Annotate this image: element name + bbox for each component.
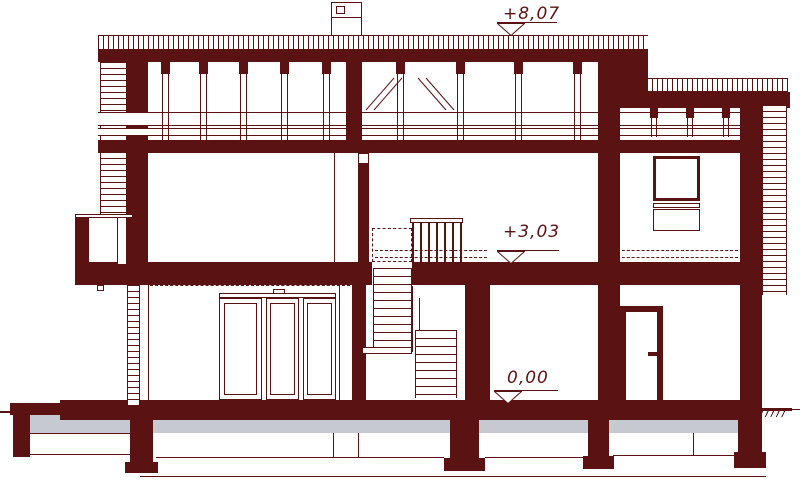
footing-base: [444, 458, 485, 471]
stair-hidden-outline: [372, 228, 412, 262]
chimney-flue: [346, 62, 362, 140]
foundation-bottom-line: [140, 476, 766, 477]
ground-fill-right: [609, 420, 738, 433]
wing-window: [653, 156, 700, 201]
wing-roof-hatch: [647, 78, 788, 92]
wing-radiator: [653, 209, 700, 231]
attic-post: [162, 72, 169, 140]
section-drawing-canvas: +8,07 +3,03 0,00: [0, 0, 800, 489]
balcony-door-frame: [117, 217, 127, 265]
chimney-cap-line: [332, 17, 361, 18]
balcony-slab-drip: [97, 285, 104, 291]
foundation-footing: [588, 400, 609, 460]
foundation-line: [613, 455, 734, 456]
attic-post: [281, 72, 288, 140]
hidden-edge-line: [612, 250, 738, 251]
wing-window-sill: [653, 203, 700, 208]
stair-flight-upper: [373, 268, 412, 348]
attic-post: [240, 72, 247, 140]
wing-collar-beam-lower: [620, 128, 740, 136]
main-roof-hatch: [98, 35, 648, 50]
attic-post: [200, 72, 207, 140]
interior-partition-wall-ground: [352, 285, 366, 400]
grade-hatch-right: [762, 411, 786, 417]
level-marker-roof-triangle: [497, 23, 525, 36]
level-marker-first-floor-triangle: [497, 251, 525, 264]
wing-attic-post: [687, 116, 693, 137]
foundation-footing: [13, 403, 30, 457]
balcony-parapet: [75, 218, 89, 285]
foundation-footing: [130, 400, 153, 470]
foundation-line: [358, 433, 359, 457]
wind-braces: [320, 70, 480, 118]
left-exterior-wall: [127, 62, 148, 285]
grade-line-right-ext: [792, 409, 800, 410]
patio-door-vent: [273, 289, 285, 294]
attic-post: [515, 72, 522, 140]
hidden-edge-line: [612, 257, 738, 258]
patio-door-glass: [270, 303, 295, 395]
level-marker-first-floor-label: +3,03: [503, 222, 560, 242]
level-marker-roof-label: +8,07: [503, 4, 560, 24]
main-roof-slab: [98, 50, 648, 62]
stair-landing: [362, 347, 412, 354]
foundation-footing: [450, 400, 479, 462]
stair-landing-support: [362, 354, 363, 400]
foundation-line: [333, 433, 334, 457]
ground-floor-slab: [60, 400, 762, 420]
wing-attic-post: [651, 116, 657, 137]
wall-face-line: [148, 285, 149, 400]
stair-newel-line: [411, 286, 413, 352]
ground-fill-mid: [479, 420, 588, 433]
level-marker-ground-label: 0,00: [507, 368, 549, 388]
terrace-foundation-outline: [28, 433, 140, 455]
footing-base: [734, 452, 766, 468]
first-floor-slab-left: [75, 262, 372, 285]
wall-reveal-line: [334, 153, 335, 262]
wall-face-line: [339, 285, 340, 400]
patio-door-glass: [224, 303, 257, 395]
ground-fill-left: [153, 420, 450, 433]
terrace-post: [127, 285, 140, 405]
grade-line-left: [0, 411, 13, 413]
interior-partition-wall-first-floor: [358, 163, 369, 262]
wing-right-wall-insulation: [762, 105, 787, 295]
attic-floor-slab: [98, 140, 762, 153]
door-jamb-left: [620, 306, 626, 400]
foundation-line: [693, 433, 694, 455]
foundation-footing: [738, 400, 762, 456]
first-floor-slab-right: [412, 262, 762, 285]
patio-door-glass: [307, 303, 332, 395]
ceiling-hidden-line: [150, 285, 350, 286]
footing-base: [125, 462, 158, 473]
attic-post: [574, 72, 581, 140]
interior-wall-ground: [465, 285, 490, 400]
foundation-line: [156, 457, 444, 458]
door-handle: [648, 352, 658, 356]
wing-attic-post: [723, 116, 729, 137]
foundation-line: [485, 457, 583, 458]
footing-base: [583, 456, 614, 469]
level-marker-ground-triangle: [494, 391, 522, 404]
chimney-vent: [336, 6, 345, 14]
stair-railing-balusters: [412, 223, 462, 262]
stair-flight-lower: [415, 330, 457, 398]
